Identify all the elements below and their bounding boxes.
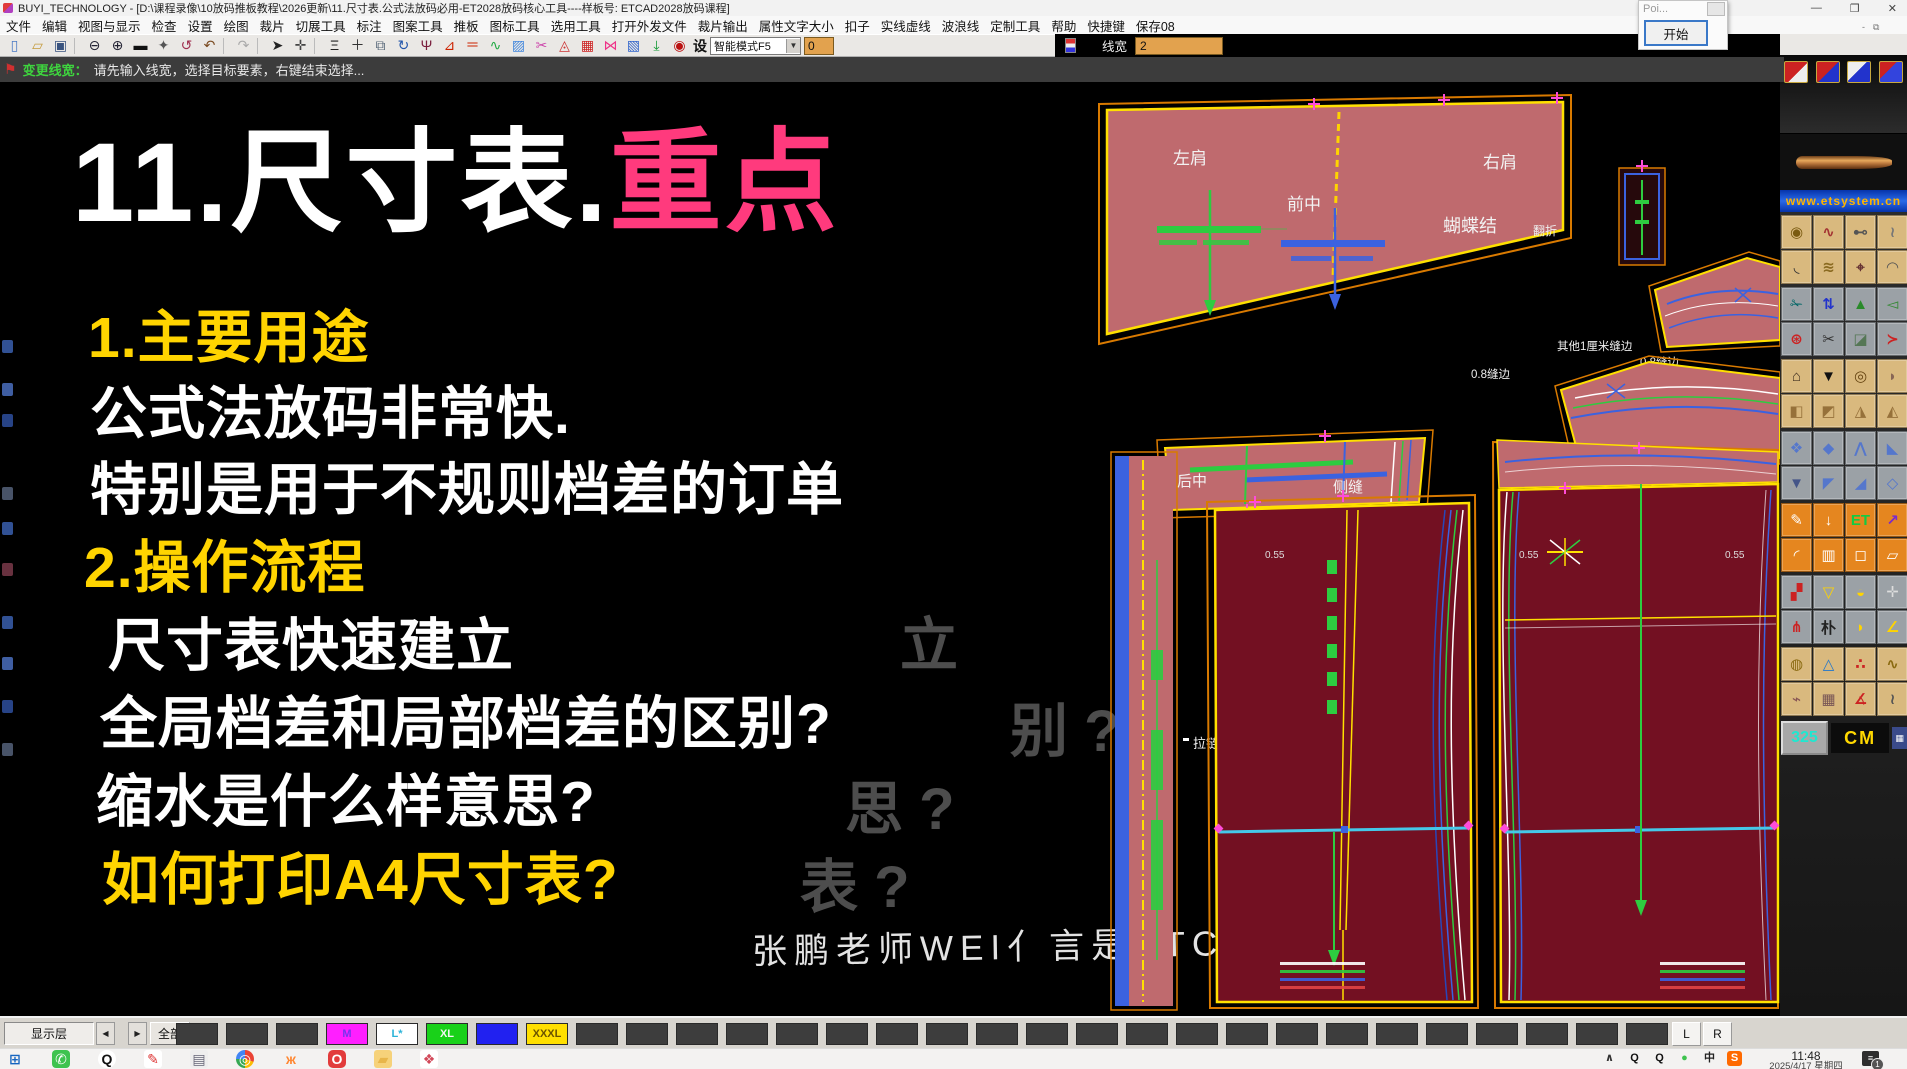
palette-tool-icon[interactable]: ◍ — [1781, 647, 1812, 681]
menu-item[interactable]: 实线虚线 — [881, 16, 931, 35]
overlay-line-6: 全局档差和局部档差的区别? — [100, 678, 832, 760]
menu-item[interactable]: 检查 — [152, 16, 177, 35]
undo-icon[interactable]: ↶ — [198, 36, 221, 55]
redo-icon[interactable]: ↷ — [232, 36, 255, 55]
notification-badge: 1 — [1871, 1058, 1884, 1069]
chrome-icon[interactable]: ◎ — [236, 1050, 254, 1068]
menu-item[interactable]: 设置 — [188, 16, 213, 35]
poi-window-title: Poi... — [1643, 3, 1668, 15]
photos-icon[interactable]: ❖ — [420, 1050, 438, 1068]
spiral-icon[interactable]: ◉ — [668, 36, 691, 55]
toolbar-corner — [1780, 34, 1907, 55]
title-highlight: 重点 — [610, 120, 840, 245]
size-xxl-button[interactable] — [476, 1023, 518, 1045]
red-o-icon[interactable]: O — [328, 1050, 346, 1068]
palette-tool-icon[interactable]: ⋔ — [1781, 610, 1812, 644]
palette-tool-icon[interactable]: ⊷ — [1845, 215, 1876, 249]
label-back-center: 后中 — [1177, 473, 1207, 490]
label-note-2: 0.55 — [1519, 550, 1539, 561]
pattern-piece-collar-upper[interactable] — [1649, 252, 1780, 352]
status-message-bar: ⚑ 变更线宽： 请先输入线宽，选择目标要素，右键结束选择... — [0, 57, 1784, 82]
sogou-icon[interactable]: S — [1727, 1051, 1742, 1066]
palette-tool-icon[interactable]: ≻ — [1877, 322, 1907, 356]
label-note-3: 0.55 — [1725, 550, 1745, 561]
palette-tool-icon[interactable]: ◩ — [1813, 394, 1844, 428]
command-hint: 请先输入线宽，选择目标要素，右键结束选择... — [94, 60, 365, 79]
palette-tool-icon[interactable]: ◒ — [1845, 575, 1876, 609]
size-xxxl-button[interactable]: XXXL — [526, 1023, 568, 1045]
size-cell[interactable] — [1326, 1023, 1368, 1045]
layer-prev-button[interactable]: ◀ — [96, 1022, 115, 1045]
paint-icon[interactable]: ✎ — [144, 1050, 162, 1068]
flag-pennant-icon: ⚑ — [4, 61, 17, 78]
menu-item[interactable]: 图案工具 — [393, 16, 443, 35]
label-right-shoulder: 右肩 — [1483, 153, 1517, 172]
palette-quick-1[interactable] — [1784, 61, 1808, 83]
palette-tool-icon[interactable]: ⌖ — [1845, 250, 1876, 284]
palette-tool-icon[interactable]: ▼ — [1813, 359, 1844, 393]
ghost-handwriting: 表 ? — [800, 840, 910, 924]
new-file-icon[interactable]: ▯ — [3, 36, 26, 55]
rotate-piece-icon[interactable]: ↻ — [392, 36, 415, 55]
et-cad-app: BUYI_TECHNOLOGY - [D:\课程录像\10放码推板教程\2026… — [0, 0, 1907, 1069]
size-cell[interactable] — [976, 1023, 1018, 1045]
palette-tool-icon[interactable]: ↗ — [1877, 503, 1907, 537]
flag-icon[interactable] — [1065, 38, 1076, 53]
palette-tool-icon[interactable]: ≀ — [1877, 682, 1907, 716]
add-point-icon[interactable]: ＋ — [346, 36, 369, 55]
main-toolbar: ▯▱▣⊖⊕▬✦↺↶↷➤✛Ξ＋⧉↻Ψ⊿＝∿▨✂◬▦⋈▧⤓◉ 设 智能模式F5 ▼ … — [0, 34, 1058, 57]
palette-tool-icon[interactable]: ▥ — [1813, 538, 1844, 572]
palette-tool-icon[interactable]: ◎ — [1845, 359, 1876, 393]
size-cell[interactable] — [176, 1023, 218, 1045]
layer-mark[interactable] — [2, 700, 13, 713]
mdi-minimize-button[interactable]: - — [1862, 22, 1865, 33]
palette-tool-icon[interactable]: ✛ — [1877, 575, 1907, 609]
tool-palette: www.etsystem.cn ◉∿⊷≀◟≋⌖◠ ✁⇅▲◅⊛✂◪≻ ⌂▼◎◗◧◩… — [1780, 55, 1907, 1016]
date-label: 2025/4/17 星期四 — [1768, 1062, 1844, 1069]
palette-tool-icon[interactable]: ▽ — [1813, 575, 1844, 609]
palette-tool-icon[interactable]: ∿ — [1813, 215, 1844, 249]
palette-tool-icon[interactable]: ◅ — [1877, 287, 1907, 321]
palette-tool-icon[interactable]: ◭ — [1877, 394, 1907, 428]
save-icon[interactable]: ▣ — [49, 36, 72, 55]
palette-tool-icon[interactable]: ◣ — [1877, 431, 1907, 465]
size-cell[interactable] — [1576, 1023, 1618, 1045]
palette-tool-icon[interactable]: ET — [1845, 503, 1876, 537]
qq-icon[interactable]: Q — [98, 1050, 116, 1068]
notes-icon[interactable]: ▤ — [190, 1050, 208, 1068]
palette-tool-icon[interactable]: ✎ — [1781, 503, 1812, 537]
pattern-piece-strip[interactable] — [1111, 452, 1177, 1010]
mode-select[interactable]: 智能模式F5 ▼ — [710, 37, 801, 55]
pattern-piece-panel-right[interactable]: 0.55 0.55 — [1493, 440, 1779, 1008]
hatch-icon[interactable]: ▨ — [507, 36, 530, 55]
tray-qq-icon[interactable]: Q — [1627, 1051, 1642, 1066]
zoom-in-icon[interactable]: ⊕ — [106, 36, 129, 55]
menu-item[interactable]: 保存08 — [1136, 16, 1175, 35]
palette-tool-icon[interactable]: ▱ — [1877, 538, 1907, 572]
menu-item[interactable]: 标注 — [357, 16, 382, 35]
notification-center-icon[interactable]: ≡ 1 — [1862, 1051, 1879, 1066]
palette-tool-icon[interactable]: ◻ — [1845, 538, 1876, 572]
palette-tool-icon[interactable]: ▞ — [1781, 575, 1812, 609]
menu-item[interactable]: 帮助 — [1051, 16, 1076, 35]
wechat-icon[interactable]: ✆ — [52, 1050, 70, 1068]
palette-tool-icon[interactable]: ◢ — [1845, 466, 1876, 500]
palette-tool-icon[interactable]: ◆ — [1813, 431, 1844, 465]
linewidth-field[interactable]: 2 — [1135, 37, 1223, 55]
palette-tool-icon[interactable]: 朴 — [1813, 610, 1844, 644]
menu-item[interactable]: 推板 — [454, 16, 479, 35]
size-cell[interactable] — [1126, 1023, 1168, 1045]
overlay-line-8: 如何打印A4尺寸表? — [102, 834, 619, 916]
palette-tool-icon[interactable]: ⊛ — [1781, 322, 1812, 356]
size-cell[interactable] — [1526, 1023, 1568, 1045]
overlay-line-1: 1.主要用途 — [88, 292, 370, 374]
etsystem-banner: www.etsystem.cn — [1780, 190, 1907, 212]
palette-tool-icon[interactable]: ◇ — [1877, 466, 1907, 500]
size-cell[interactable] — [1426, 1023, 1468, 1045]
palette-quick-2[interactable] — [1816, 61, 1840, 83]
label-seam-08b: 0.8缝边 — [1471, 367, 1510, 381]
layer-mark[interactable] — [2, 522, 13, 535]
move-tool-icon[interactable]: ✛ — [289, 36, 312, 55]
menu-item[interactable]: 快捷键 — [1087, 16, 1125, 35]
palette-tool-icon[interactable]: ◟ — [1781, 250, 1812, 284]
unit-cm-button[interactable]: CM — [1831, 723, 1889, 753]
size-cell[interactable] — [826, 1023, 868, 1045]
label-note-1: 0.55 — [1265, 550, 1285, 561]
clock[interactable]: 11:48 2025/4/17 星期四 — [1768, 1050, 1844, 1069]
label-side-seam: 侧缝 — [1333, 479, 1363, 496]
curve-cut-icon[interactable]: ✂ — [530, 36, 553, 55]
palette-tool-icon[interactable]: ∴ — [1845, 647, 1876, 681]
palette-tool-icon[interactable]: ◗ — [1845, 610, 1876, 644]
layer-mark[interactable] — [2, 657, 13, 670]
size-l-button[interactable]: L* — [376, 1023, 418, 1045]
tray-qq2-icon[interactable]: Q — [1652, 1051, 1667, 1066]
size-m-button[interactable]: M — [326, 1023, 368, 1045]
overlay-line-2: 公式法放码非常快. — [90, 368, 571, 450]
palette-tool-icon[interactable]: ▼ — [1781, 466, 1812, 500]
layer-mark[interactable] — [2, 340, 13, 353]
size-cell[interactable] — [726, 1023, 768, 1045]
tray-wechat-icon[interactable]: ● — [1677, 1051, 1692, 1066]
layer-size-bar: 显示层 ◀ ▶ 全部 ML*XLXXXL L R — [0, 1016, 1907, 1050]
value-field[interactable]: 0 — [804, 37, 834, 55]
drawing-canvas[interactable]: 11.尺寸表.重点 1.主要用途 公式法放码非常快. 特别是用于不规则档差的订单… — [0, 82, 1780, 1016]
title-bar: BUYI_TECHNOLOGY - [D:\课程录像\10放码推板教程\2026… — [0, 0, 1907, 16]
overlay-line-4: 2.操作流程 — [84, 522, 366, 604]
menu-item[interactable]: 扣子 — [845, 16, 870, 35]
palette-tool-icon[interactable]: ◜ — [1781, 538, 1812, 572]
palette-quick-4[interactable] — [1879, 61, 1903, 83]
label-left-shoulder: 左肩 — [1173, 149, 1207, 168]
mdi-restore-button[interactable]: ⧉ — [1873, 22, 1879, 33]
layer-mark[interactable] — [2, 616, 13, 629]
command-name: 变更线宽： — [23, 60, 88, 79]
restore-button[interactable]: ❐ — [1850, 2, 1860, 15]
menu-item[interactable]: 属性文字大小 — [759, 16, 834, 35]
folder-icon[interactable]: ▰ — [374, 1050, 392, 1068]
pattern-piece-yoke[interactable]: 左肩 前中 右肩 蝴蝶结 翻折 — [1099, 92, 1571, 344]
color-grid-icon[interactable]: ▦ — [576, 36, 599, 55]
menu-item[interactable]: 选用工具 — [551, 16, 601, 35]
menu-item[interactable]: 裁片输出 — [698, 16, 748, 35]
close-button[interactable]: ✕ — [1888, 2, 1897, 15]
calculator-icon[interactable]: ▦ — [1892, 727, 1907, 749]
pan-hand-icon[interactable]: ✦ — [152, 36, 175, 55]
overlay-line-5: 尺寸表快速建立 — [108, 600, 514, 682]
palette-tool-icon[interactable]: ❖ — [1781, 431, 1812, 465]
palette-tool-icon[interactable]: ∿ — [1877, 647, 1907, 681]
size-cell[interactable] — [1626, 1023, 1668, 1045]
palette-quick-3[interactable] — [1847, 61, 1871, 83]
layer-mark[interactable] — [2, 487, 13, 500]
menu-item[interactable]: 打开外发文件 — [612, 16, 687, 35]
tray-expand-icon[interactable]: ∧ — [1602, 1051, 1617, 1066]
label-fold: 翻折 — [1533, 223, 1557, 238]
left-piece-button[interactable]: L — [1672, 1022, 1701, 1046]
butterfly-icon[interactable]: ж — [282, 1050, 300, 1068]
sep[interactable] — [257, 38, 264, 54]
menu-item[interactable]: 图标工具 — [490, 16, 540, 35]
palette-tool-icon[interactable]: ◪ — [1845, 322, 1876, 356]
parallel-icon[interactable]: ＝ — [461, 36, 484, 55]
size-cell[interactable] — [1376, 1023, 1418, 1045]
bullet-graphic — [1780, 134, 1907, 190]
palette-tool-icon[interactable]: ▲ — [1845, 287, 1876, 321]
palette-tool-icon[interactable]: △ — [1813, 647, 1844, 681]
windows-taskbar: ⊞✆Q✎▤◎жO▰❖ ∧QQ●中S 11:48 2025/4/17 星期四 ≡ … — [0, 1048, 1907, 1069]
size-cell[interactable] — [226, 1023, 268, 1045]
palette-tool-icon[interactable]: ◠ — [1877, 250, 1907, 284]
palette-tool-icon[interactable]: ✁ — [1781, 287, 1812, 321]
settings-label: 设 — [693, 36, 707, 56]
size-cell[interactable] — [576, 1023, 618, 1045]
palette-tool-icon[interactable]: ≀ — [1877, 215, 1907, 249]
menu-item[interactable]: 视图与显示 — [78, 16, 141, 35]
start-button[interactable]: ⊞ — [6, 1050, 24, 1068]
sep[interactable] — [74, 38, 81, 54]
palette-tool-icon[interactable]: ◮ — [1845, 394, 1876, 428]
size-cell[interactable] — [1476, 1023, 1518, 1045]
menu-item[interactable]: 波浪线 — [942, 16, 980, 35]
size-cell[interactable] — [1026, 1023, 1068, 1045]
minimize-button[interactable]: — — [1811, 2, 1822, 15]
sep[interactable] — [314, 38, 321, 54]
palette-tool-icon[interactable]: ⌁ — [1781, 682, 1812, 716]
select-cursor-icon[interactable]: ➤ — [266, 36, 289, 55]
overlay-line-7: 缩水是什么样意思? — [96, 756, 596, 838]
size-cell[interactable] — [676, 1023, 718, 1045]
angle-icon[interactable]: ⊿ — [438, 36, 461, 55]
palette-tool-icon[interactable]: ◤ — [1813, 466, 1844, 500]
layer-mark[interactable] — [2, 563, 13, 576]
screen-icon[interactable]: ▬ — [129, 36, 152, 55]
open-folder-icon[interactable]: ▱ — [26, 36, 49, 55]
size-cell[interactable] — [1276, 1023, 1318, 1045]
label-bow: 蝴蝶结 — [1443, 216, 1497, 236]
smart-curve-icon[interactable]: ∿ — [484, 36, 507, 55]
layer-display-box: 显示层 — [4, 1022, 94, 1045]
psi-tool-icon[interactable]: Ψ — [415, 36, 438, 55]
menu-item[interactable]: 切展工具 — [296, 16, 346, 35]
palette-tool-icon[interactable]: ▦ — [1813, 682, 1844, 716]
pattern-piece-small[interactable] — [1619, 160, 1665, 265]
linewidth-label: 线宽 — [1102, 36, 1127, 55]
poi-floating-window[interactable]: Poi... 开始 — [1638, 0, 1728, 50]
left-marker-strip — [2, 82, 14, 756]
size-cell[interactable] — [876, 1023, 918, 1045]
chevron-down-icon[interactable]: ▼ — [786, 39, 800, 53]
poi-window-button[interactable] — [1707, 2, 1725, 16]
size-cell[interactable] — [1076, 1023, 1118, 1045]
layer-mark[interactable] — [2, 414, 13, 427]
size-cell[interactable] — [1176, 1023, 1218, 1045]
menu-item[interactable]: 裁片 — [260, 16, 285, 35]
scale-value-button[interactable]: 325 — [1781, 721, 1828, 755]
sep[interactable] — [223, 38, 230, 54]
menu-item[interactable]: 编辑 — [42, 16, 67, 35]
size-xl-button[interactable]: XL — [426, 1023, 468, 1045]
layer-mark[interactable] — [2, 743, 13, 756]
menu-item[interactable]: 绘图 — [224, 16, 249, 35]
zoom-out-icon[interactable]: ⊖ — [83, 36, 106, 55]
mirror-icon[interactable]: ⧉ — [369, 36, 392, 55]
size-cell[interactable] — [626, 1023, 668, 1045]
net-icon[interactable]: ▧ — [622, 36, 645, 55]
rotate-view-icon[interactable]: ↺ — [175, 36, 198, 55]
palette-tool-icon[interactable]: ⋀ — [1845, 431, 1876, 465]
size-cell[interactable] — [1226, 1023, 1268, 1045]
start-button[interactable]: 开始 — [1644, 20, 1708, 46]
app-logo-icon — [3, 3, 13, 13]
smart-pen-icon[interactable]: Ξ — [323, 36, 346, 55]
overlay-line-3: 特别是用于不规则档差的订单 — [90, 444, 844, 526]
video-title: 11.尺寸表.重点 — [72, 92, 840, 254]
drop-arrow-icon[interactable]: ⤓ — [645, 36, 668, 55]
menu-item[interactable]: 定制工具 — [990, 16, 1040, 35]
pattern-piece-panel-left[interactable]: 0.55 — [1207, 490, 1478, 1008]
seam-icon[interactable]: ◬ — [553, 36, 576, 55]
ghost-handwriting: 思 ? — [845, 762, 955, 846]
palette-tool-icon[interactable]: ◉ — [1781, 215, 1812, 249]
right-piece-button[interactable]: R — [1703, 1022, 1732, 1046]
label-front-center: 前中 — [1287, 195, 1321, 214]
palette-tool-icon[interactable]: ⌂ — [1781, 359, 1812, 393]
menu-bar: 文件编辑视图与显示检查设置绘图裁片切展工具标注图案工具推板图标工具选用工具打开外… — [0, 16, 1907, 34]
size-cell[interactable] — [926, 1023, 968, 1045]
palette-tool-icon[interactable]: ◗ — [1877, 359, 1907, 393]
layer-mark[interactable] — [2, 383, 13, 396]
size-cell[interactable] — [276, 1023, 318, 1045]
bowtie-icon[interactable]: ⋈ — [599, 36, 622, 55]
label-seam-other: 其他1厘米缝边 — [1557, 339, 1633, 353]
palette-tool-icon[interactable]: ◧ — [1781, 394, 1812, 428]
layer-next-button[interactable]: ▶ — [128, 1022, 147, 1045]
palette-tool-icon[interactable]: ≋ — [1813, 250, 1844, 284]
palette-tool-icon[interactable]: ⇅ — [1813, 287, 1844, 321]
menu-item[interactable]: 文件 — [6, 16, 31, 35]
cad-pattern-view[interactable]: 左肩 前中 右肩 蝴蝶结 翻折 其他1厘米缝边 0.8缝边 0.8缝边 — [1095, 90, 1780, 1015]
palette-tool-icon[interactable]: ∠ — [1877, 610, 1907, 644]
ime-icon[interactable]: 中 — [1702, 1051, 1717, 1066]
ghost-handwriting: 立 — [900, 598, 958, 682]
size-cell[interactable] — [776, 1023, 818, 1045]
palette-tool-icon[interactable]: ↓ — [1813, 503, 1844, 537]
palette-tool-icon[interactable]: ∡ — [1845, 682, 1876, 716]
palette-tool-icon[interactable]: ✂ — [1813, 322, 1844, 356]
window-title: BUYI_TECHNOLOGY - [D:\课程录像\10放码推板教程\2026… — [18, 0, 730, 16]
